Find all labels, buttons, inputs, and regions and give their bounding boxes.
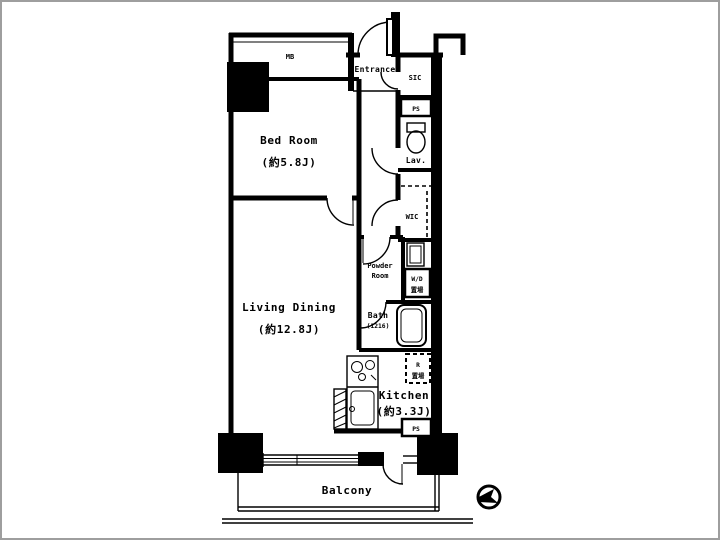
bath-size-label: (1216) bbox=[367, 323, 390, 330]
powder-door-arc bbox=[363, 237, 390, 264]
sink-icon bbox=[350, 391, 375, 425]
entrance-label: Entrance bbox=[355, 65, 396, 74]
ps-lower-label: PS bbox=[412, 426, 420, 433]
balcony-outline bbox=[222, 473, 473, 523]
lavatory-door-arc bbox=[372, 148, 398, 174]
bath-label: Bath bbox=[368, 311, 388, 320]
floorplan-image: MB Entrance SIC PS Lav. WIC Powder Room … bbox=[0, 0, 720, 540]
bathtub-icon bbox=[397, 305, 426, 346]
washer-dryer-label-1: W/D bbox=[411, 276, 423, 283]
column-bottom-right bbox=[417, 433, 458, 475]
bedroom-door-arc bbox=[327, 198, 354, 225]
refrigerator-label-2: 置場 bbox=[412, 371, 425, 380]
balcony-door-arc bbox=[383, 464, 403, 484]
wall-top-right-protrusion bbox=[436, 36, 463, 55]
column-bottom-left bbox=[218, 433, 263, 473]
column-top-left bbox=[227, 62, 269, 112]
counter-hatch bbox=[334, 389, 346, 429]
window-wall-chunk bbox=[358, 452, 384, 466]
kitchen-label: Kitchen bbox=[379, 389, 430, 402]
sic-label: SIC bbox=[409, 74, 422, 82]
refrigerator-label-1: R bbox=[416, 362, 420, 369]
powder-room-label-2: Room bbox=[372, 272, 389, 280]
toilet-icon bbox=[407, 123, 425, 153]
compass-icon bbox=[477, 486, 500, 508]
powder-room-label-1: Powder bbox=[367, 262, 392, 270]
sic-door-arc bbox=[381, 72, 398, 89]
washer-dryer-label-2: 置場 bbox=[411, 285, 424, 294]
floorplan-drawing: MB Entrance SIC PS Lav. WIC Powder Room … bbox=[2, 2, 718, 538]
meter-box-label: MB bbox=[286, 53, 294, 61]
kitchen-counter bbox=[334, 356, 378, 429]
living-dining-size-label: (約12.8J) bbox=[258, 322, 320, 336]
sliding-window bbox=[263, 453, 359, 467]
bed-room-size-label: (約5.8J) bbox=[262, 155, 317, 169]
balcony-label: Balcony bbox=[322, 484, 373, 497]
wic-door-arc bbox=[372, 200, 398, 226]
stove-icon bbox=[352, 361, 377, 381]
kitchen-size-label: (約3.3J) bbox=[377, 404, 432, 418]
wall-right bbox=[431, 55, 442, 433]
bed-room-label: Bed Room bbox=[260, 134, 318, 147]
vanity-icon bbox=[407, 243, 424, 266]
ps-upper-label: PS bbox=[412, 106, 420, 113]
living-dining-label: Living Dining bbox=[242, 301, 336, 314]
lavatory-label: Lav. bbox=[406, 156, 426, 165]
wic-label: WIC bbox=[406, 213, 419, 221]
entrance-door-leaf bbox=[387, 19, 393, 55]
